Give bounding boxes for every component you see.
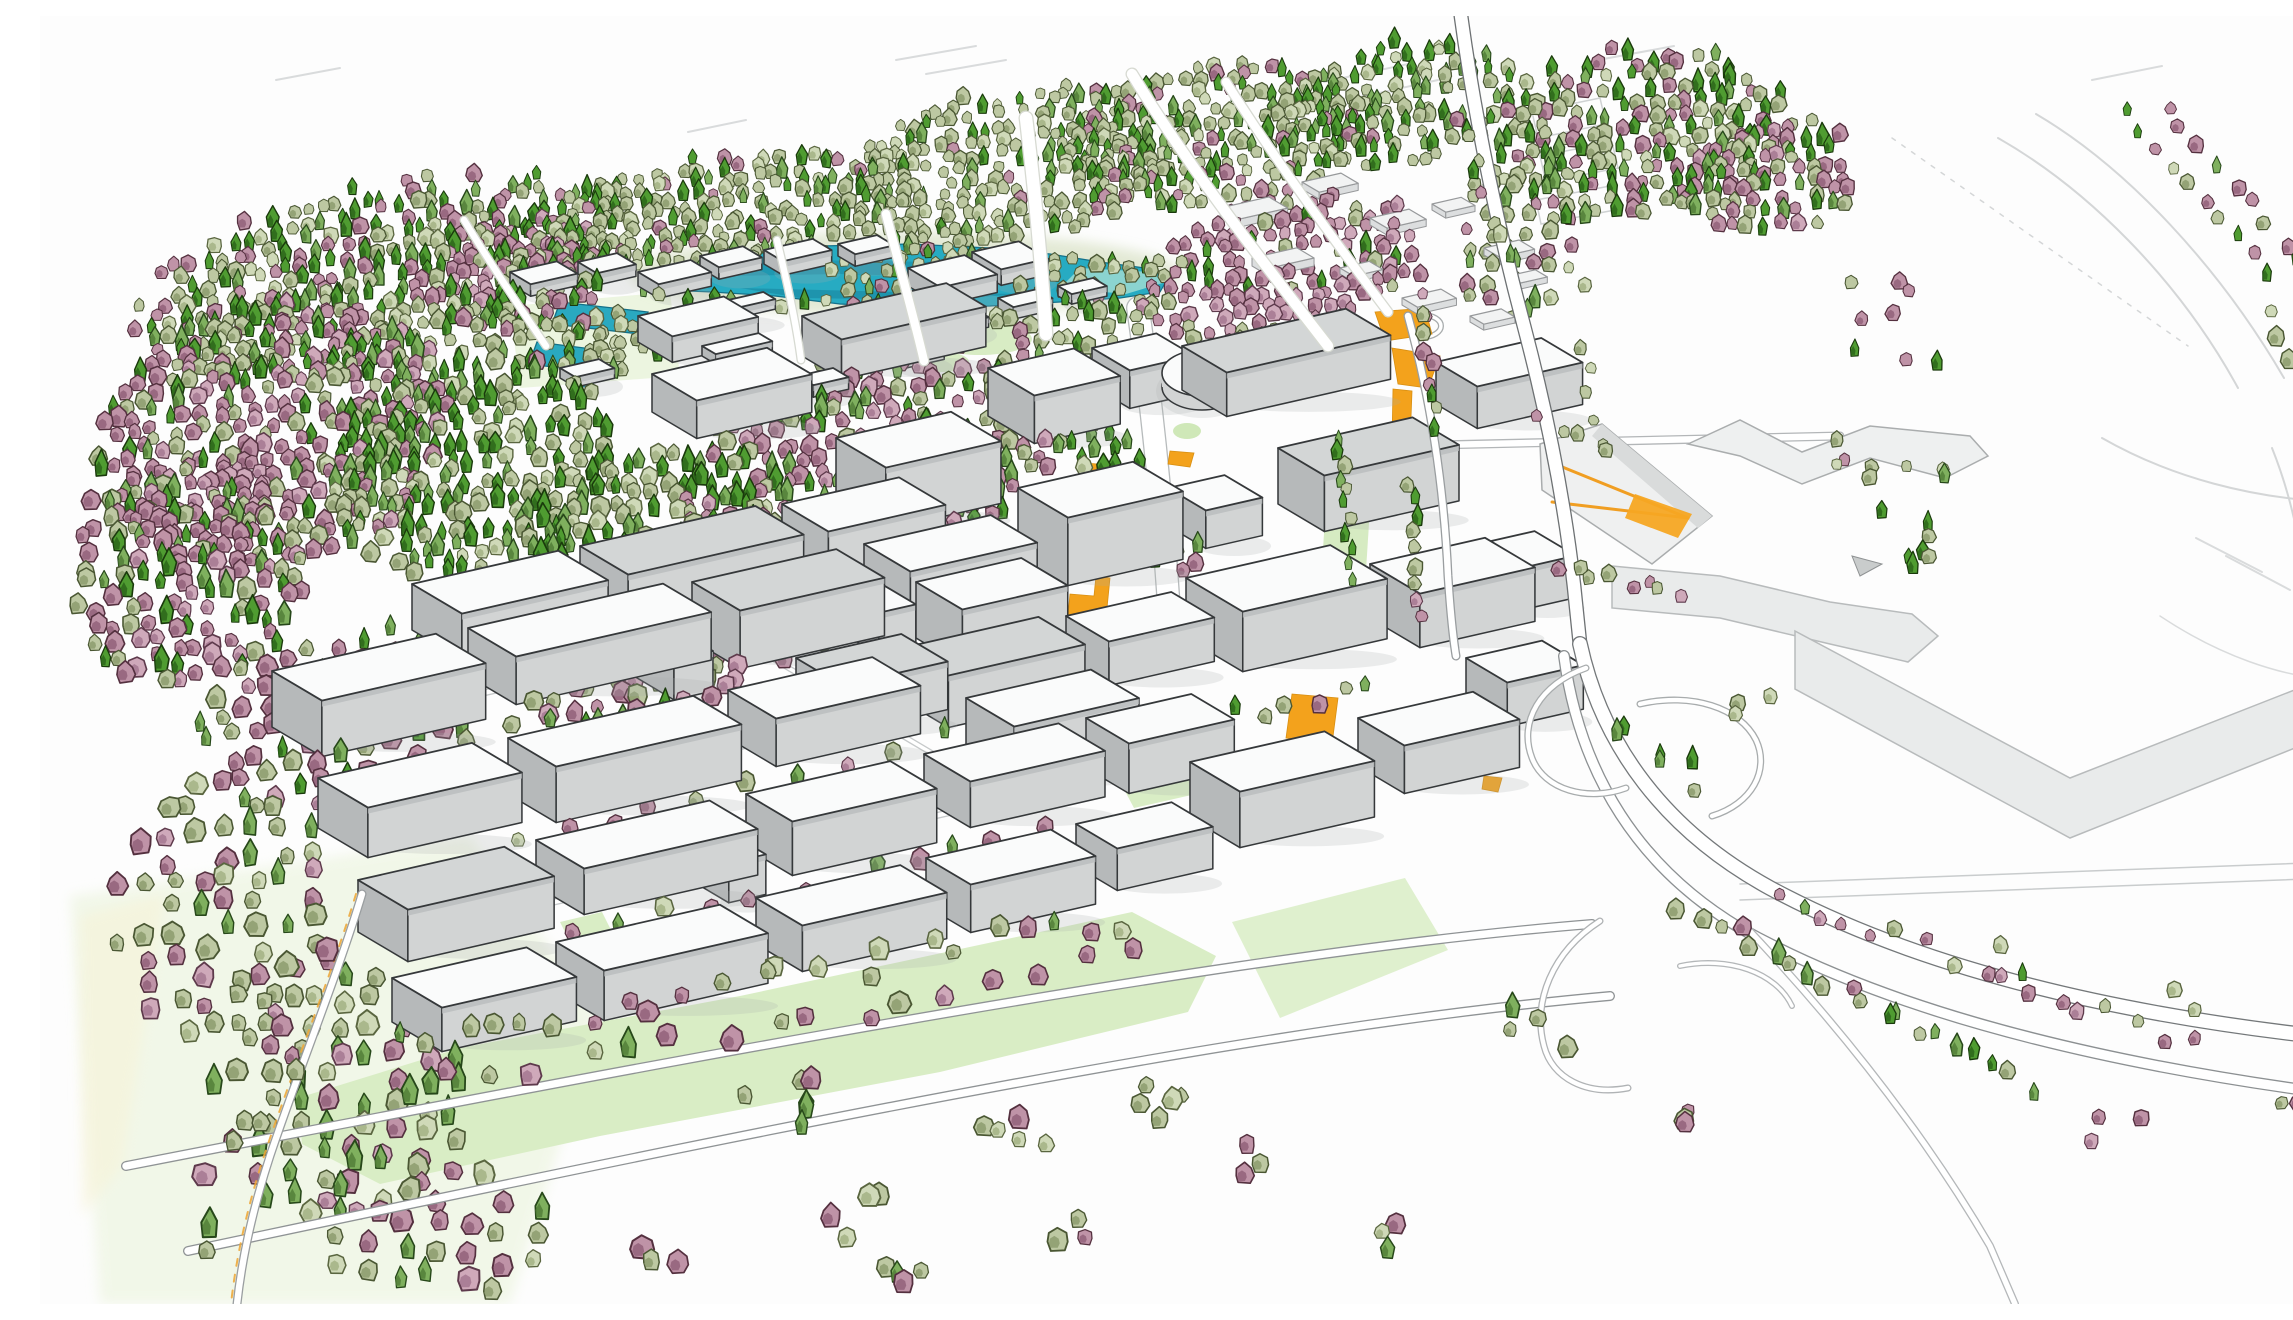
- masterplan-3d-aerial-view: [40, 16, 2293, 1304]
- masterplan-illustration-canvas: [40, 16, 2293, 1304]
